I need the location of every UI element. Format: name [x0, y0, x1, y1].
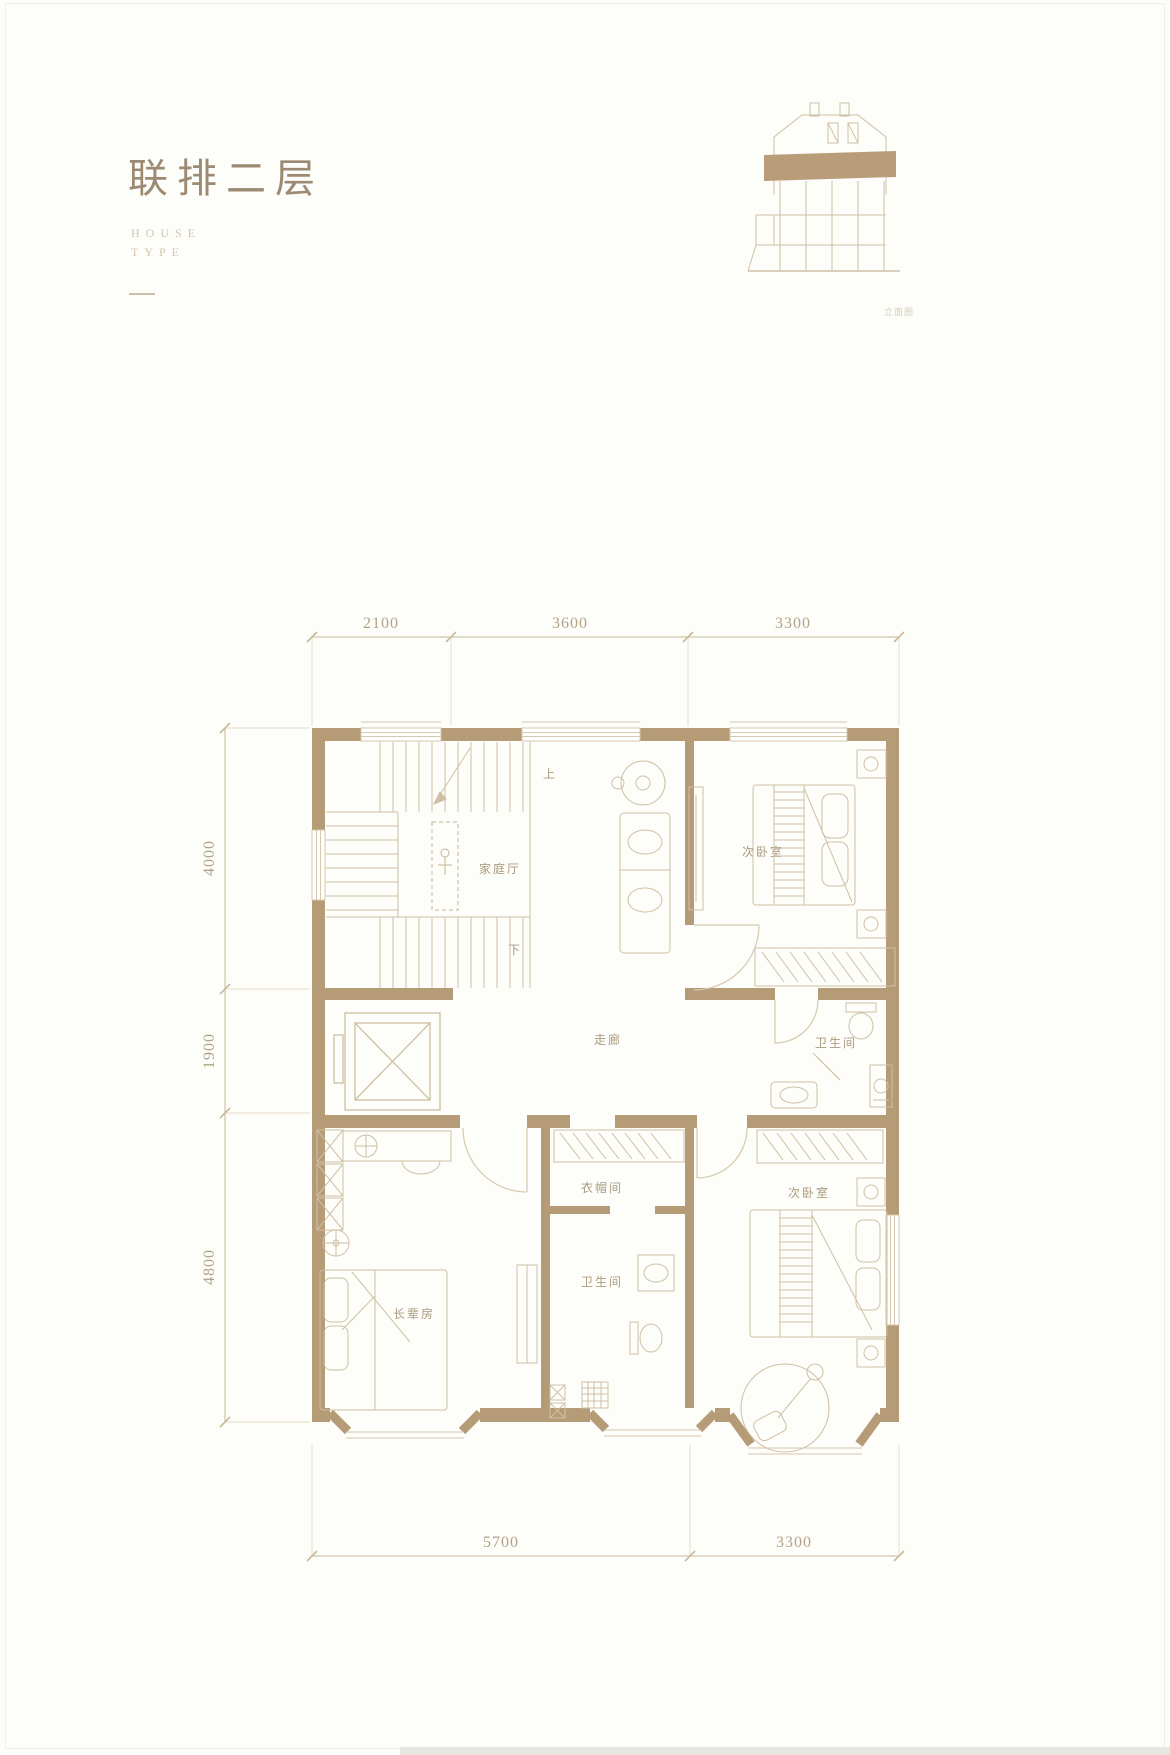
- elder-room-door: [463, 1128, 527, 1192]
- hall-furniture: [612, 761, 670, 953]
- stair-up-label: 上: [543, 767, 555, 781]
- room-label-bedroom-bottom: 次卧室: [788, 1185, 830, 1200]
- dim-top-3: 3300: [775, 615, 811, 632]
- room-label-elder-room: 长辈房: [393, 1306, 435, 1321]
- floor-plan: 2100 3600 3300 4000 1900 4800 5700 3300: [170, 570, 990, 1630]
- bay-windows: [330, 1413, 880, 1454]
- room-label-bedroom-top: 次卧室: [742, 844, 784, 859]
- bedroom-bottom-furniture: [741, 1130, 887, 1452]
- bedroom-top-door: [694, 925, 759, 990]
- dim-top-1: 2100: [363, 615, 399, 632]
- elevation-caption: 立面图: [884, 305, 944, 318]
- bath-top-door: [775, 1000, 818, 1043]
- dim-left-2: 1900: [201, 1033, 218, 1069]
- room-label-corridor: 走廊: [594, 1032, 622, 1047]
- subtitle-line-1: HOUSE: [131, 224, 201, 243]
- room-label-family-hall: 家庭厅: [479, 861, 521, 876]
- building-elevation-diagram: [740, 95, 950, 330]
- dim-left-3: 4800: [201, 1249, 218, 1285]
- highlighted-floor-slab: [764, 151, 896, 181]
- dim-bottom-2: 3300: [776, 1534, 812, 1551]
- page-title: 联排二层: [128, 146, 324, 204]
- dim-top-2: 3600: [552, 615, 588, 632]
- stair-down-label: 下: [508, 943, 520, 957]
- page-edge-shadow: [400, 1747, 1170, 1755]
- bedroom-bottom-door: [697, 1128, 747, 1178]
- elevator: [334, 1013, 440, 1110]
- room-label-bath-bottom: 卫生间: [581, 1275, 623, 1289]
- cloakroom-rack: [554, 1130, 684, 1162]
- dim-left-1: 4000: [201, 840, 218, 876]
- bedroom-top-furniture: [689, 750, 895, 986]
- page-subtitle: HOUSE TYPE: [131, 224, 201, 262]
- floor-plan-drawing: 2100 3600 3300 4000 1900 4800 5700 3300: [170, 570, 990, 1630]
- elevation-drawing: [740, 95, 950, 330]
- subtitle-line-2: TYPE: [131, 243, 201, 262]
- room-label-bath-top: 卫生间: [815, 1036, 857, 1050]
- dim-bottom-1: 5700: [483, 1534, 519, 1551]
- bath-top-fixtures: [771, 1003, 892, 1108]
- stair-void: [432, 822, 458, 910]
- room-label-cloakroom: 衣帽间: [581, 1180, 623, 1195]
- title-divider: [129, 293, 155, 295]
- elder-room-furniture: [317, 1130, 537, 1410]
